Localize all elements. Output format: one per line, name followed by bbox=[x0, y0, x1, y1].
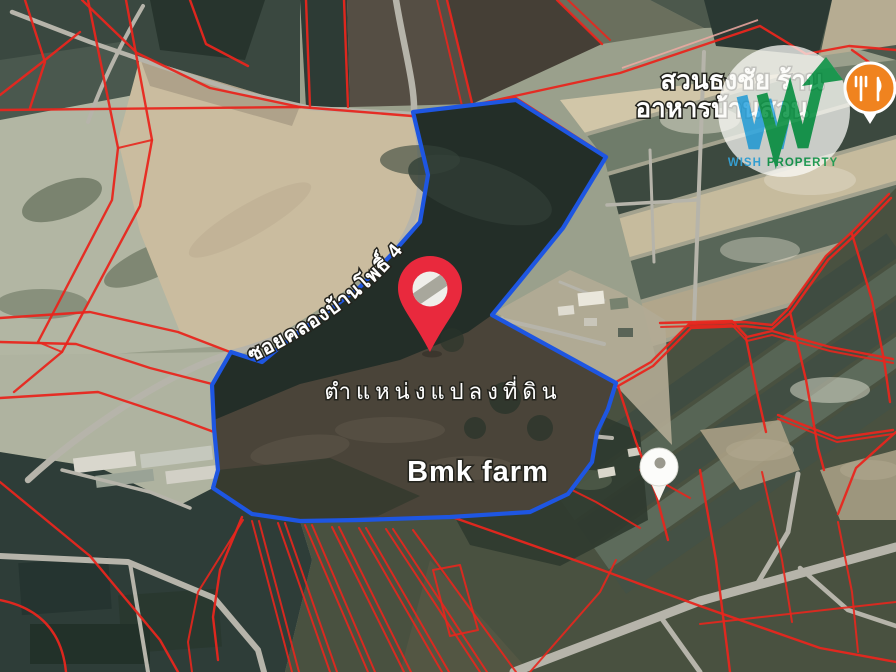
wish-property-watermark: WISHPROPERTY bbox=[718, 45, 850, 177]
plot-location-label: ตำแหน่งแปลงที่ดิน bbox=[324, 376, 561, 404]
farm-poi-label: Bmk farm bbox=[407, 456, 549, 488]
map-canvas[interactable]: ซอยคลองบ้านโพธิ์ 4 ตำแหน่งแปลงที่ดิน Bmk… bbox=[0, 0, 896, 672]
brand-text: WISHPROPERTY bbox=[728, 157, 838, 169]
property-map-screenshot: ซอยคลองบ้านโพธิ์ 4 ตำแหน่งแปลงที่ดิน Bmk… bbox=[0, 0, 896, 672]
